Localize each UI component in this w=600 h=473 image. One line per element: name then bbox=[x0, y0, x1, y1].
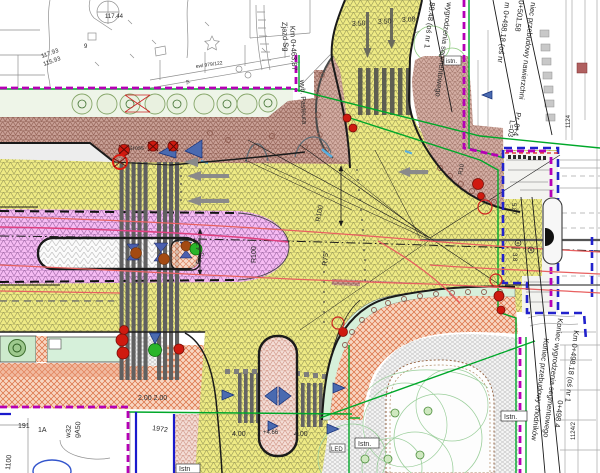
svg-text:117.44: 117.44 bbox=[105, 14, 124, 20]
svg-text:R75: R75 bbox=[322, 253, 330, 267]
svg-text:2.00 2.00: 2.00 2.00 bbox=[138, 395, 167, 402]
svg-text:4.00: 4.00 bbox=[232, 431, 246, 438]
svg-text:3.50: 3.50 bbox=[352, 20, 366, 28]
svg-text:LED: LED bbox=[331, 447, 343, 453]
svg-text:Istn: Istn bbox=[179, 466, 190, 473]
svg-text:3.8: 3.8 bbox=[511, 253, 517, 262]
svg-text:R100: R100 bbox=[251, 246, 258, 263]
svg-text:3.50: 3.50 bbox=[378, 18, 392, 26]
svg-text:1100: 1100 bbox=[5, 454, 13, 470]
svg-text:5.87: 5.87 bbox=[510, 203, 516, 215]
svg-text:191: 191 bbox=[18, 423, 30, 430]
svg-text:w32: w32 bbox=[65, 425, 73, 440]
svg-text:1124: 1124 bbox=[566, 114, 572, 128]
svg-text:Gross: Gross bbox=[128, 145, 144, 152]
svg-text:1A: 1A bbox=[38, 427, 47, 434]
svg-text:Istn.: Istn. bbox=[358, 441, 371, 448]
svg-text:gA50: gA50 bbox=[74, 421, 82, 438]
svg-text:3.08: 3.08 bbox=[402, 16, 416, 24]
svg-text:+4.66: +4.66 bbox=[263, 430, 279, 436]
svg-text:Istn.: Istn. bbox=[504, 414, 517, 421]
svg-text:4.00: 4.00 bbox=[294, 431, 308, 438]
svg-text:4.75: 4.75 bbox=[196, 240, 202, 250]
svg-text:1124/2: 1124/2 bbox=[571, 421, 577, 440]
